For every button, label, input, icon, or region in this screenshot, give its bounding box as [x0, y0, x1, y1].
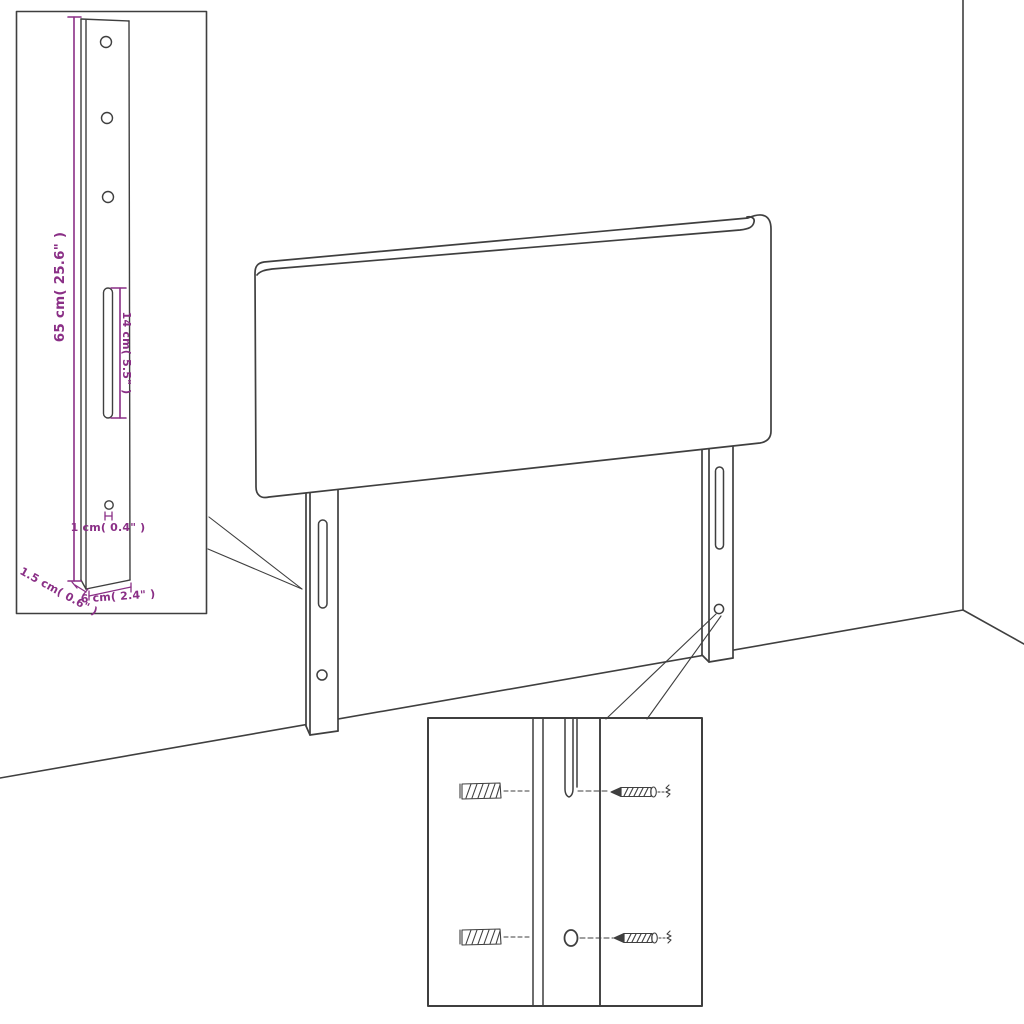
- bracket-side-view: [81, 19, 130, 589]
- screw-icon-top: [578, 785, 670, 797]
- right-mounting-leg: [702, 445, 733, 662]
- leg-strip-detail: [533, 719, 600, 1005]
- screw-icon-bottom: [580, 931, 671, 943]
- callout-lines-left: [208, 517, 302, 589]
- dimension-hole-line: [105, 512, 112, 520]
- bracket-hole-2: [102, 113, 113, 124]
- floor-line-left: [0, 610, 963, 778]
- screw-head-glyph: [667, 931, 671, 943]
- bracket-bottom-hole: [105, 501, 113, 509]
- dimension-hole-label: 1 cm( 0.4" ): [71, 521, 146, 534]
- dimension-lines: [68, 17, 131, 600]
- headboard-outline: [255, 215, 771, 498]
- diagram-canvas: 65 cm( 25.6" ) 14 cm( 5.5" ) 1 cm( 0.4" …: [0, 0, 1024, 1024]
- leg-hole-detail: [565, 930, 578, 946]
- screw-head-glyph: [666, 785, 670, 797]
- bracket-slot: [104, 288, 113, 418]
- dimension-total-height-line: [68, 17, 81, 581]
- wall-plug-icon-top: [460, 783, 531, 799]
- dimension-slot-length-label: 14 cm( 5.5" ): [120, 312, 133, 395]
- scene: [0, 0, 1024, 1006]
- left-mounting-leg: [306, 489, 338, 735]
- dimension-width-label: 6 cm( 2.4" ): [80, 587, 156, 605]
- leg-slot-detail: [565, 719, 573, 797]
- bracket-hole-1: [101, 37, 112, 48]
- wall-plug-icon-bottom: [460, 929, 531, 945]
- hardware-detail-inset: [428, 718, 702, 1006]
- bracket-hole-3: [103, 192, 114, 203]
- dimension-total-height-label: 65 cm( 25.6" ): [52, 232, 68, 342]
- floor-line-right: [963, 610, 1024, 644]
- headboard-panel: [255, 215, 771, 498]
- assembly-diagram: 65 cm( 25.6" ) 14 cm( 5.5" ) 1 cm( 0.4" …: [0, 0, 1024, 1024]
